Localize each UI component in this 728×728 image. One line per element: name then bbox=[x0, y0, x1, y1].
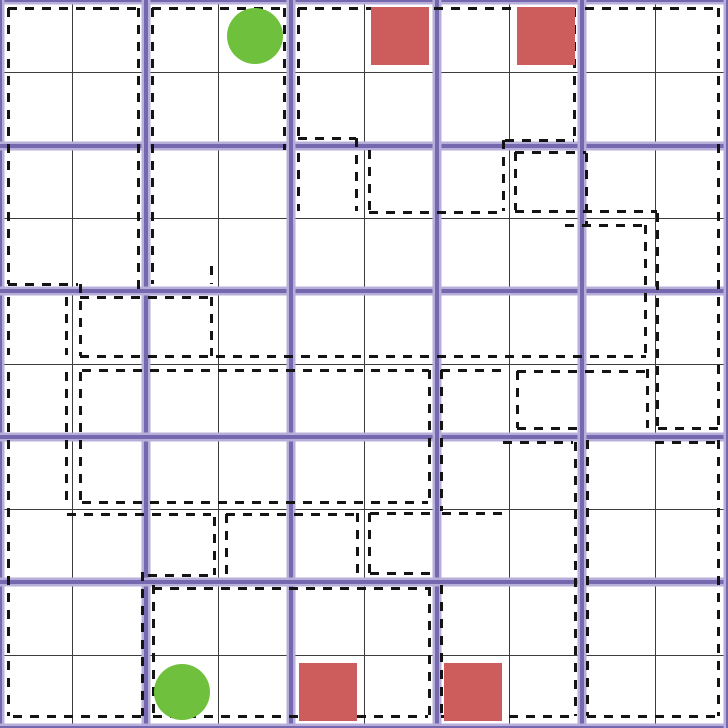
region-boundary-segment bbox=[517, 370, 647, 373]
board-cell[interactable] bbox=[73, 364, 146, 437]
region-boundary-segment bbox=[565, 224, 645, 227]
region-boundary-segment bbox=[297, 153, 300, 211]
block-line-horizontal bbox=[0, 435, 728, 439]
puzzle-board bbox=[0, 0, 728, 728]
board-cell[interactable] bbox=[218, 218, 291, 291]
board-cell[interactable] bbox=[582, 437, 655, 510]
region-boundary-segment bbox=[148, 574, 213, 577]
board-cell[interactable] bbox=[73, 146, 146, 219]
region-boundary-segment bbox=[428, 370, 431, 502]
region-boundary-segment bbox=[514, 152, 517, 210]
region-boundary-segment bbox=[656, 213, 659, 428]
board-cell[interactable] bbox=[291, 291, 364, 364]
board-cell[interactable] bbox=[146, 218, 219, 291]
region-boundary-segment bbox=[8, 283, 78, 286]
region-boundary-segment bbox=[82, 369, 429, 372]
block-line-vertical bbox=[289, 0, 293, 728]
region-boundary-segment bbox=[355, 138, 358, 211]
board-cell[interactable] bbox=[510, 582, 583, 655]
region-boundary-segment bbox=[79, 372, 82, 500]
grid-line-vertical bbox=[509, 0, 510, 728]
region-boundary-segment bbox=[298, 137, 356, 140]
region-boundary-segment bbox=[505, 139, 574, 142]
region-boundary-segment bbox=[7, 297, 10, 355]
board-cell[interactable] bbox=[0, 146, 73, 219]
board-cell[interactable] bbox=[146, 364, 219, 437]
board-cell[interactable] bbox=[582, 0, 655, 73]
board-cell[interactable] bbox=[291, 146, 364, 219]
board-cell[interactable] bbox=[510, 510, 583, 583]
board-cell[interactable] bbox=[146, 146, 219, 219]
board-cell[interactable] bbox=[146, 0, 219, 73]
region-boundary-segment bbox=[717, 440, 720, 716]
region-boundary-segment bbox=[210, 297, 213, 356]
region-boundary-segment bbox=[141, 572, 144, 716]
region-boundary-segment bbox=[13, 715, 142, 718]
red-square-piece[interactable] bbox=[371, 7, 429, 65]
green-circle-piece[interactable] bbox=[227, 8, 283, 64]
region-boundary-segment bbox=[370, 572, 436, 575]
region-boundary-segment bbox=[587, 715, 716, 718]
region-boundary-segment bbox=[8, 7, 138, 10]
board-cell[interactable] bbox=[364, 291, 437, 364]
board-cell[interactable] bbox=[510, 291, 583, 364]
region-boundary-segment bbox=[717, 8, 720, 428]
region-boundary-segment bbox=[586, 440, 589, 716]
region-boundary-segment bbox=[574, 442, 577, 716]
board-cell[interactable] bbox=[73, 582, 146, 655]
board-cell[interactable] bbox=[510, 73, 583, 146]
region-boundary-segment bbox=[369, 211, 503, 214]
red-square-piece[interactable] bbox=[299, 663, 357, 721]
board-cell[interactable] bbox=[582, 364, 655, 437]
board-cell[interactable] bbox=[146, 437, 219, 510]
board-cell[interactable] bbox=[73, 218, 146, 291]
board-cell[interactable] bbox=[218, 291, 291, 364]
board-cell[interactable] bbox=[364, 73, 437, 146]
block-line-vertical bbox=[144, 0, 148, 728]
region-boundary-segment bbox=[65, 372, 68, 506]
board-cell[interactable] bbox=[437, 582, 510, 655]
block-line-horizontal bbox=[0, 0, 728, 2]
region-boundary-segment bbox=[137, 8, 140, 291]
block-line-horizontal bbox=[0, 289, 728, 293]
board-cell[interactable] bbox=[510, 437, 583, 510]
region-boundary-segment bbox=[80, 355, 646, 358]
board-cell[interactable] bbox=[291, 364, 364, 437]
board-cell[interactable] bbox=[0, 0, 73, 73]
region-boundary-segment bbox=[283, 8, 286, 150]
region-boundary-segment bbox=[82, 501, 428, 504]
board-cell[interactable] bbox=[291, 73, 364, 146]
red-square-piece[interactable] bbox=[517, 7, 575, 65]
region-boundary-segment bbox=[370, 512, 436, 515]
region-boundary-segment bbox=[67, 513, 211, 516]
block-line-vertical bbox=[435, 0, 439, 728]
board-cell[interactable] bbox=[291, 510, 364, 583]
board-cell[interactable] bbox=[73, 437, 146, 510]
board-cell[interactable] bbox=[218, 510, 291, 583]
region-boundary-segment bbox=[368, 513, 371, 573]
board-cell[interactable] bbox=[218, 146, 291, 219]
board-cell[interactable] bbox=[146, 73, 219, 146]
board-cell[interactable] bbox=[437, 146, 510, 219]
board-cell[interactable] bbox=[291, 437, 364, 510]
region-boundary-segment bbox=[210, 266, 213, 284]
board-cell[interactable] bbox=[364, 218, 437, 291]
region-boundary-segment bbox=[7, 8, 10, 284]
board-cell[interactable] bbox=[364, 146, 437, 219]
board-cell[interactable] bbox=[437, 73, 510, 146]
board-cell[interactable] bbox=[73, 291, 146, 364]
board-cell[interactable] bbox=[437, 437, 510, 510]
board-cell[interactable] bbox=[364, 364, 437, 437]
board-cell[interactable] bbox=[582, 146, 655, 219]
region-boundary-segment bbox=[297, 8, 300, 138]
board-cell[interactable] bbox=[73, 0, 146, 73]
board-cell[interactable] bbox=[218, 437, 291, 510]
region-boundary-segment bbox=[226, 513, 358, 516]
board-cell[interactable] bbox=[146, 582, 219, 655]
board-cell[interactable] bbox=[218, 364, 291, 437]
board-cell[interactable] bbox=[364, 582, 437, 655]
region-boundary-segment bbox=[517, 427, 578, 430]
region-boundary-segment bbox=[153, 587, 429, 590]
board-cell[interactable] bbox=[437, 364, 510, 437]
region-boundary-segment bbox=[644, 225, 647, 356]
board-cell[interactable] bbox=[582, 510, 655, 583]
board-cell[interactable] bbox=[0, 73, 73, 146]
region-boundary-segment bbox=[441, 369, 502, 372]
region-boundary-segment bbox=[151, 8, 154, 284]
board-cell[interactable] bbox=[582, 582, 655, 655]
region-boundary-segment bbox=[225, 514, 228, 582]
region-boundary-segment bbox=[655, 441, 718, 444]
block-line-horizontal bbox=[0, 580, 728, 584]
board-cell[interactable] bbox=[437, 0, 510, 73]
region-boundary-segment bbox=[503, 441, 573, 444]
region-boundary-segment bbox=[213, 517, 216, 575]
board-cell[interactable] bbox=[437, 510, 510, 583]
board-cell[interactable] bbox=[146, 291, 219, 364]
block-line-vertical bbox=[580, 0, 584, 728]
red-square-piece[interactable] bbox=[444, 663, 502, 721]
board-cell[interactable] bbox=[0, 291, 73, 364]
board-cell[interactable] bbox=[73, 510, 146, 583]
region-boundary-segment bbox=[440, 370, 443, 511]
grid-line-horizontal bbox=[0, 509, 728, 510]
grid-line-horizontal bbox=[0, 655, 728, 656]
board-cell[interactable] bbox=[73, 73, 146, 146]
board-cell[interactable] bbox=[582, 73, 655, 146]
board-cell[interactable] bbox=[437, 218, 510, 291]
board-cell[interactable] bbox=[510, 218, 583, 291]
region-boundary-segment bbox=[658, 427, 718, 430]
board-cell[interactable] bbox=[437, 291, 510, 364]
region-boundary-segment bbox=[80, 296, 211, 299]
region-boundary-segment bbox=[7, 372, 10, 716]
board-cell[interactable] bbox=[0, 437, 73, 510]
region-boundary-segment bbox=[368, 150, 371, 212]
grid-line-vertical bbox=[364, 0, 365, 728]
green-circle-piece[interactable] bbox=[154, 664, 210, 720]
board-cell[interactable] bbox=[218, 73, 291, 146]
region-boundary-segment bbox=[502, 140, 505, 211]
region-boundary-segment bbox=[79, 284, 82, 356]
region-boundary-segment bbox=[646, 369, 649, 428]
region-boundary-segment bbox=[516, 371, 519, 428]
board-cell[interactable] bbox=[291, 582, 364, 655]
region-boundary-segment bbox=[356, 513, 359, 580]
board-cell[interactable] bbox=[510, 146, 583, 219]
region-boundary-segment bbox=[442, 512, 509, 515]
board-cell[interactable] bbox=[0, 582, 73, 655]
region-boundary-segment bbox=[440, 585, 443, 716]
block-line-vertical bbox=[0, 0, 2, 728]
region-boundary-segment bbox=[428, 587, 431, 716]
board-cell[interactable] bbox=[364, 437, 437, 510]
region-boundary-segment bbox=[585, 7, 718, 10]
block-line-horizontal bbox=[0, 144, 728, 148]
board-cell[interactable] bbox=[0, 364, 73, 437]
board-cell[interactable] bbox=[218, 582, 291, 655]
board-cell[interactable] bbox=[291, 0, 364, 73]
region-boundary-segment bbox=[515, 151, 586, 154]
board-cell[interactable] bbox=[291, 218, 364, 291]
board-cell[interactable] bbox=[0, 510, 73, 583]
board-cell[interactable] bbox=[146, 510, 219, 583]
region-boundary-segment bbox=[585, 153, 588, 225]
board-cell[interactable] bbox=[0, 218, 73, 291]
region-boundary-segment bbox=[65, 297, 68, 355]
